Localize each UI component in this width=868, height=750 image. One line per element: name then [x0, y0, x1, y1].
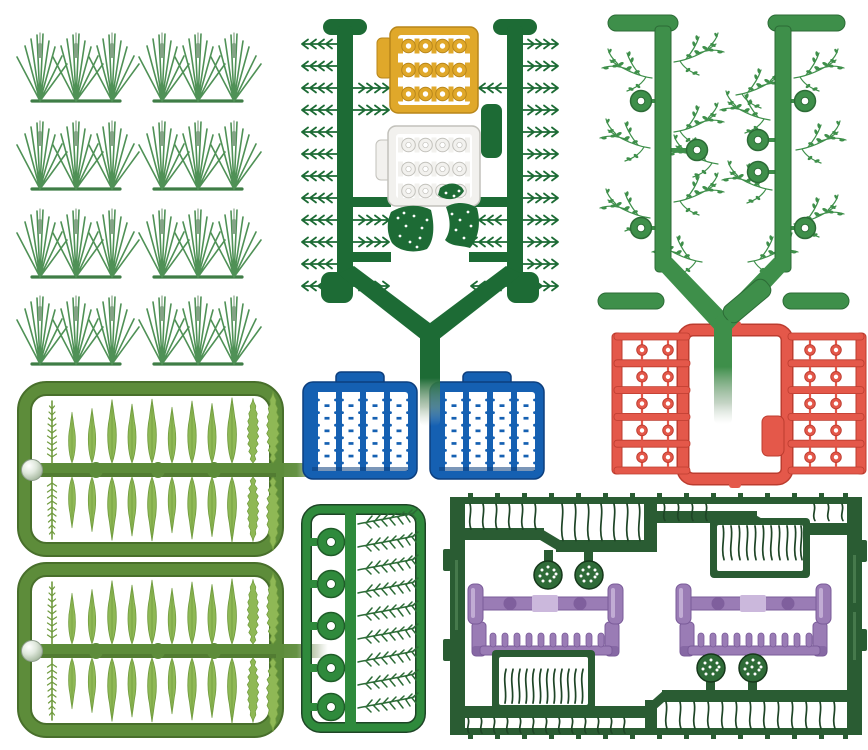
fern-sprigs-right — [522, 40, 558, 291]
olive-leaf-frame-2 — [22, 565, 329, 735]
grass-box-bottom-left — [492, 650, 595, 712]
blue-flower-panel-1 — [303, 372, 417, 479]
sprue-sheet-canvas: against — [0, 0, 868, 750]
fading-runner — [420, 330, 440, 426]
olive-leaf-frame-1 — [22, 384, 329, 554]
standing-seed-discs — [697, 654, 767, 691]
fading-runner — [714, 320, 732, 424]
grass-tuft-strips — [17, 33, 261, 364]
hanging-seed-discs — [534, 550, 603, 589]
round-flowers — [318, 529, 345, 721]
fern-sprigs-left — [302, 40, 338, 291]
red-flower-ladder-sprue — [612, 321, 866, 488]
fir-sprigs — [358, 509, 418, 712]
blue-flower-panel-2 — [430, 372, 544, 479]
diagonal-tab — [720, 276, 774, 326]
round-flower — [631, 91, 652, 112]
grass-box-top-right: against — [710, 518, 810, 578]
white-flower-panel — [376, 126, 480, 206]
large-grass-panel: against — [443, 493, 867, 739]
fern-rail-sprue — [302, 19, 558, 426]
purple-comb-2 — [676, 584, 831, 656]
round-flower-fir-sprue — [305, 508, 421, 728]
yellow-flower-panel — [377, 27, 478, 113]
wispy-twigs — [600, 32, 846, 275]
green-tab — [481, 104, 502, 158]
purple-comb-1 — [468, 584, 623, 656]
plant-sprue-sheet: against — [0, 0, 868, 750]
red-tab — [762, 416, 784, 456]
